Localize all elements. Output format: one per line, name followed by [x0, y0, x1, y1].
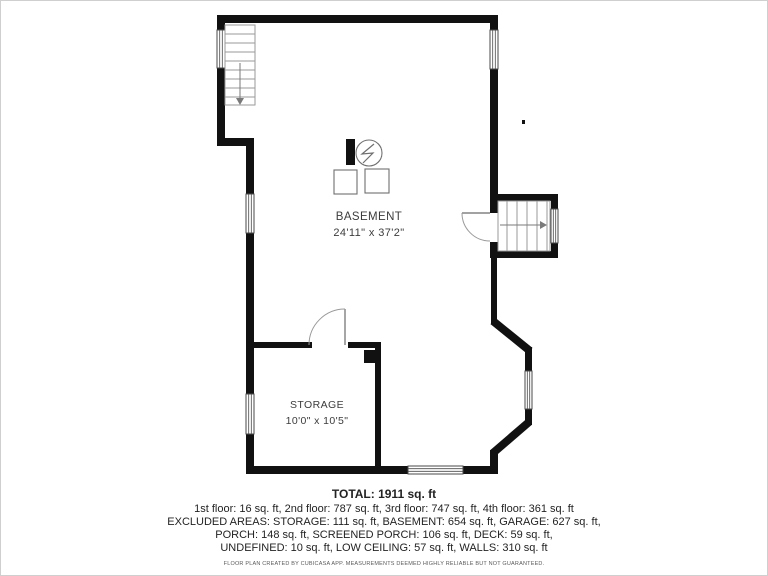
window-left-middle: [246, 194, 254, 233]
basement-room-label: BASEMENT 24'11" x 37'2": [269, 211, 469, 239]
water-heater-icon: [356, 140, 382, 166]
basement-name: BASEMENT: [269, 211, 469, 223]
window-bay: [525, 371, 532, 409]
stairwell-bottom-wall: [498, 251, 558, 258]
window-stairwell-end: [551, 209, 558, 243]
stairwell-right-top-block: [551, 194, 558, 209]
area-summary: TOTAL: 1911 sq. ft 1st floor: 16 sq. ft,…: [1, 487, 767, 567]
window-bottom: [408, 466, 463, 474]
storage-top-wall-left: [254, 342, 312, 348]
storage-room-label: STORAGE 10'0" x 10'5": [242, 399, 392, 427]
bay-upper-diagonal-wall: [493, 321, 530, 351]
staircase-top-left: [225, 25, 255, 105]
bay-right-wall-upper: [525, 347, 532, 371]
stairs-down-arrowhead: [236, 98, 244, 105]
stairwell-right-bottom-block: [551, 243, 558, 258]
left-wall-segment-b: [246, 233, 254, 394]
right-wall-top-segment: [490, 15, 498, 30]
floor-plan-page: BASEMENT 24'11" x 37'2" STORAGE 10'0" x …: [0, 0, 768, 576]
right-wall-upper-segment: [490, 69, 498, 213]
floors-area-text: 1st floor: 16 sq. ft, 2nd floor: 787 sq.…: [1, 503, 767, 516]
left-wall-top-segment: [217, 15, 225, 30]
disclaimer-text: FLOOR PLAN CREATED BY CUBICASA APP. MEAS…: [1, 561, 767, 567]
bay-bottom-wall: [490, 450, 498, 474]
stairwell-top-wall: [498, 194, 558, 201]
window-right-top: [490, 30, 498, 69]
right-wall-below-door: [490, 242, 498, 258]
excluded-areas-line-1: EXCLUDED AREAS: STORAGE: 111 sq. ft, BAS…: [1, 516, 767, 529]
storage-door-swing-arc: [309, 309, 345, 345]
basement-dimensions: 24'11" x 37'2": [269, 227, 469, 239]
excluded-areas-line-2: PORCH: 148 sq. ft, SCREENED PORCH: 106 s…: [1, 529, 767, 542]
staircase-right: [498, 201, 550, 251]
window-left-top: [217, 30, 225, 68]
right-wall-below-stairs: [491, 258, 497, 324]
excluded-areas-line-3: UNDEFINED: 10 sq. ft, LOW CEILING: 57 sq…: [1, 542, 767, 555]
storage-name: STORAGE: [242, 399, 392, 411]
door-to-storage: [309, 309, 345, 345]
bay-lower-diagonal-wall: [493, 422, 529, 453]
furnace-bar-symbol: [346, 139, 355, 165]
bottom-wall-left: [246, 466, 408, 474]
stairs-right-arrowhead: [540, 221, 547, 229]
appliance-square-left: [334, 170, 357, 194]
left-wall-upper-segment: [217, 68, 225, 146]
appliance-square-right: [365, 169, 389, 193]
left-wall-segment-a: [246, 138, 254, 194]
chimney-block: [364, 350, 377, 363]
small-mark: [522, 120, 525, 124]
total-area-text: TOTAL: 1911 sq. ft: [1, 487, 767, 501]
storage-dimensions: 10'0" x 10'5": [242, 415, 392, 427]
top-wall: [217, 15, 498, 23]
